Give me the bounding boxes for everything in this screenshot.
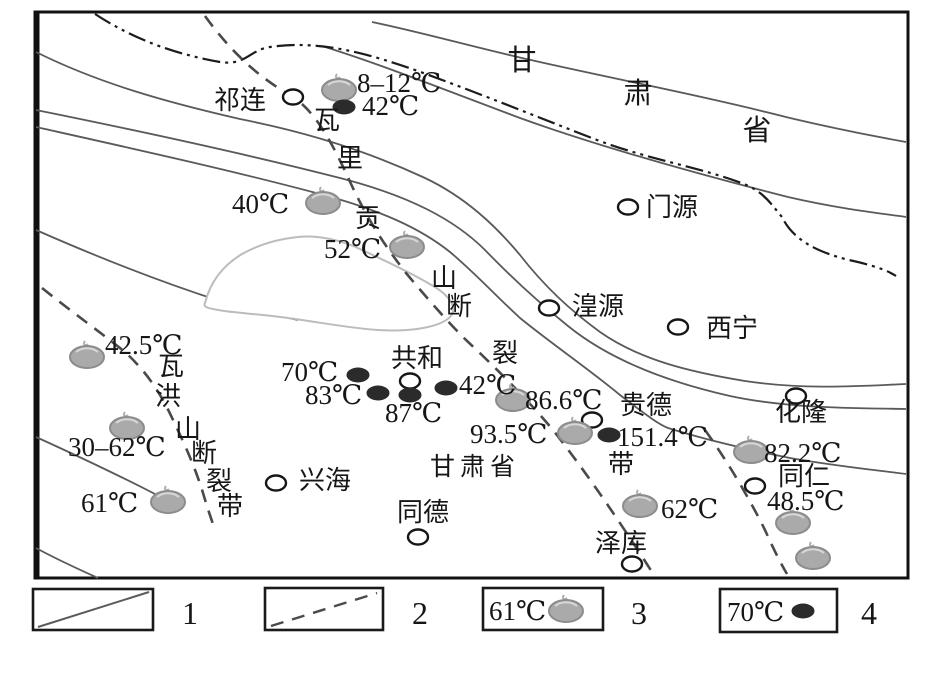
- temp-label-86-6: 86.6℃: [525, 385, 602, 415]
- fault-char-waligong-2: 贡: [355, 204, 381, 233]
- town-circle-menyuan: [618, 200, 638, 215]
- fault-char-waligong-5: 裂: [492, 339, 518, 368]
- temp-label-83: 83℃: [305, 380, 362, 410]
- geothermal-dot-42-mid: [435, 381, 458, 396]
- hot-spring-symbol-62: [623, 490, 657, 517]
- map-canvas: 甘 肃 省 甘肃省 祁连 门源 湟源 西宁 共和 贵德 化隆 同仁 兴海 同德 …: [0, 0, 940, 684]
- town-label-hualong: 化隆: [775, 398, 827, 427]
- fault-char-waligong-1: 里: [337, 144, 363, 173]
- legend-num-1: 1: [182, 595, 198, 631]
- province-char-sheng: 省: [742, 114, 773, 147]
- fault-char-wahong-3: 断: [191, 439, 217, 468]
- town-label-menyuan: 门源: [646, 193, 698, 222]
- temp-label-87: 87℃: [385, 398, 442, 428]
- town-circle-huangyuan: [539, 301, 559, 316]
- town-label-xinghai: 兴海: [299, 466, 351, 495]
- temp-label-42-mid: 42℃: [459, 370, 516, 400]
- province-char-gan: 甘: [507, 44, 538, 77]
- temp-label-62: 62℃: [661, 494, 718, 524]
- hot-spring-symbol-61: [151, 486, 185, 513]
- temp-label-151-4: 151.4℃: [617, 422, 708, 452]
- legend-geothermal-dot-symbol: [792, 604, 815, 619]
- town-label-zeku: 泽库: [595, 529, 647, 558]
- hot-spring-symbol-8-12: [322, 74, 356, 101]
- fault-char-waligong-3: 山: [431, 264, 457, 293]
- fault-char-waligong-4: 断: [446, 292, 472, 321]
- legend-num-3: 3: [631, 595, 647, 631]
- town-circle-xining: [668, 320, 688, 335]
- temp-label-93-5: 93.5℃: [470, 419, 547, 449]
- province-boundary-line: [95, 14, 896, 276]
- region-label-bottom: 甘肃省: [430, 453, 520, 481]
- hot-spring-symbol-82-2: [734, 436, 768, 463]
- province-char-su: 肃: [623, 77, 654, 110]
- legend-num-2: 2: [412, 595, 428, 631]
- town-label-qilian: 祁连: [214, 86, 266, 115]
- temp-label-42-top: 42℃: [362, 91, 419, 121]
- fault-char-wahong-0: 瓦: [158, 352, 184, 381]
- legend: 1 2 61℃ 3 70℃ 4: [33, 588, 877, 632]
- legend-solid-line-sample: [38, 592, 149, 627]
- town-label-xining: 西宁: [706, 314, 758, 343]
- town-circle-tongren: [745, 479, 765, 494]
- temp-label-40: 40℃: [232, 189, 289, 219]
- temp-label-61: 61℃: [81, 488, 138, 518]
- fault-char-waligong-6: 带: [608, 450, 634, 479]
- legend-hot-spring-symbol: [549, 595, 583, 622]
- temp-label-30-62: 30–62℃: [68, 432, 166, 462]
- town-circle-xinghai: [266, 476, 286, 491]
- town-circle-qilian: [283, 90, 303, 105]
- fault-char-wahong-5: 带: [217, 492, 243, 521]
- geological-line-southwest-3: [36, 548, 98, 578]
- legend-dot-temp-label: 70℃: [727, 597, 784, 627]
- town-circle-gonghe: [400, 374, 420, 389]
- hot-spring-symbol-52: [390, 231, 424, 258]
- legend-dashed-line-sample: [271, 593, 377, 626]
- fault-char-wahong-1: 洪: [155, 382, 181, 411]
- hot-spring-symbol-42-5: [70, 341, 104, 368]
- town-circle-zeku: [622, 557, 642, 572]
- town-label-guide: 贵德: [620, 391, 672, 420]
- fault-char-waligong-0: 瓦: [314, 106, 340, 135]
- town-label-huangyuan: 湟源: [572, 292, 624, 321]
- town-label-gonghe: 共和: [391, 344, 443, 373]
- legend-spring-temp-label: 61℃: [489, 596, 546, 626]
- temp-label-82-2: 82.2℃: [764, 438, 841, 468]
- hot-spring-symbol-southeast: [796, 542, 830, 569]
- geothermal-map-figure: 甘 肃 省 甘肃省 祁连 门源 湟源 西宁 共和 贵德 化隆 同仁 兴海 同德 …: [0, 0, 940, 684]
- legend-num-4: 4: [861, 595, 877, 631]
- temp-label-52: 52℃: [324, 234, 381, 264]
- town-label-tongde: 同德: [397, 498, 449, 527]
- temp-label-48-5: 48.5℃: [767, 486, 844, 516]
- town-circle-tongde: [408, 530, 428, 545]
